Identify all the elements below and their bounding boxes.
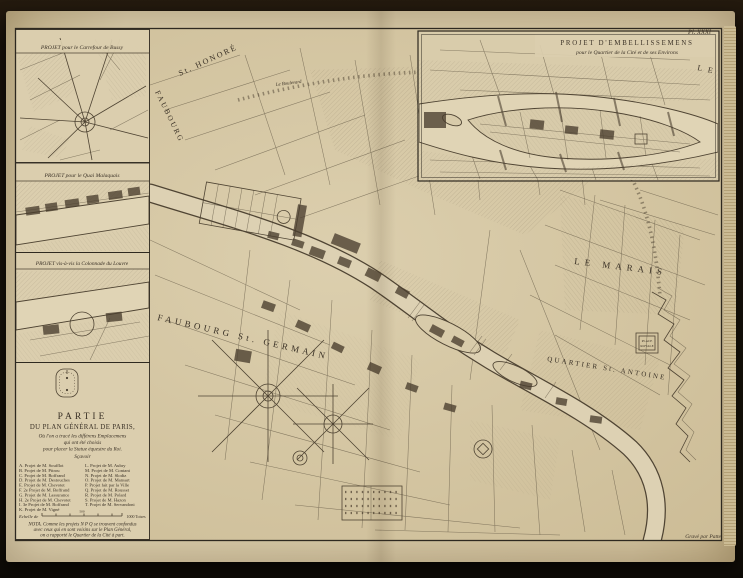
- nota-line-2: avec ceux qui en sont voisins sur le Pla…: [34, 528, 132, 533]
- cartouche-subtitle-3: pour placer la Statue équestre du Roi.: [42, 447, 122, 453]
- inset-quai-malaquais: PROJET pour le Quai Malaquais: [16, 163, 150, 252]
- inset-cite: PROJET D'EMBELLISSEMENS pour le Quartier…: [419, 32, 718, 180]
- legend-item: T. Projet de M. Servandoni: [85, 502, 135, 507]
- photographed-book-page: { "plate": { "number": "Pl. XXXI", "cred…: [0, 0, 743, 578]
- inset-malaquais-title: PROJET pour le Quai Malaquais: [43, 173, 119, 179]
- cartouche-subtitle-2: qui ont été choisis: [64, 440, 102, 446]
- nota-line-3: on a rapporté le Quartier de la Cité à p…: [40, 534, 125, 539]
- nota-line-1: NOTA. Comme les projets N P Q se trouven…: [27, 523, 136, 528]
- scale-label-right: 1000 Toises: [126, 514, 146, 519]
- cartouche-subtitle-1: Où l'on a tracé les différens Emplacemen…: [39, 433, 127, 440]
- cartouche-title-1: PARTIE: [58, 412, 108, 422]
- cartouche-panel: PARTIE DU PLAN GÉNÉRAL DE PARIS, Où l'on…: [16, 363, 149, 539]
- inset-bussy-title: PROJET pour le Carrefour de Bussy: [40, 44, 124, 51]
- inset-cite-louvre-block: [424, 112, 446, 128]
- inset-colonnade-title: PROJET vis-à-vis la Colonnade du Louvre: [35, 261, 129, 267]
- place-royale-label-1: PLACE: [642, 339, 653, 343]
- star-plaza-rays-2: [293, 384, 373, 464]
- scale-label-left: Echelle de: [18, 514, 38, 519]
- inset-cite-title-1: PROJET D'EMBELLISSEMENS: [560, 40, 693, 47]
- cartouche-savoir: Sçavoir: [74, 454, 91, 460]
- inset-colonnade-louvre: PROJET vis-à-vis la Colonnade du Louvre: [16, 253, 149, 362]
- plate-number: Pl. XXXI: [687, 29, 712, 36]
- cartouche-title-2: DU PLAN GÉNÉRAL DE PARIS,: [30, 423, 135, 431]
- place-royale-label-2: ROYALE: [640, 344, 653, 348]
- inset-carrefour-bussy: PROJET pour le Carrefour de Bussy: [16, 30, 149, 162]
- legend-item: K. Projet de M. Vigné: [19, 507, 59, 512]
- engraver-credit: Gravé par Patte: [685, 534, 721, 540]
- scale-mid-number: 500: [79, 510, 85, 514]
- inset-cite-title-2: pour le Quartier de la Cité et de ses En…: [575, 50, 678, 56]
- page-fold-shadow: [366, 11, 396, 562]
